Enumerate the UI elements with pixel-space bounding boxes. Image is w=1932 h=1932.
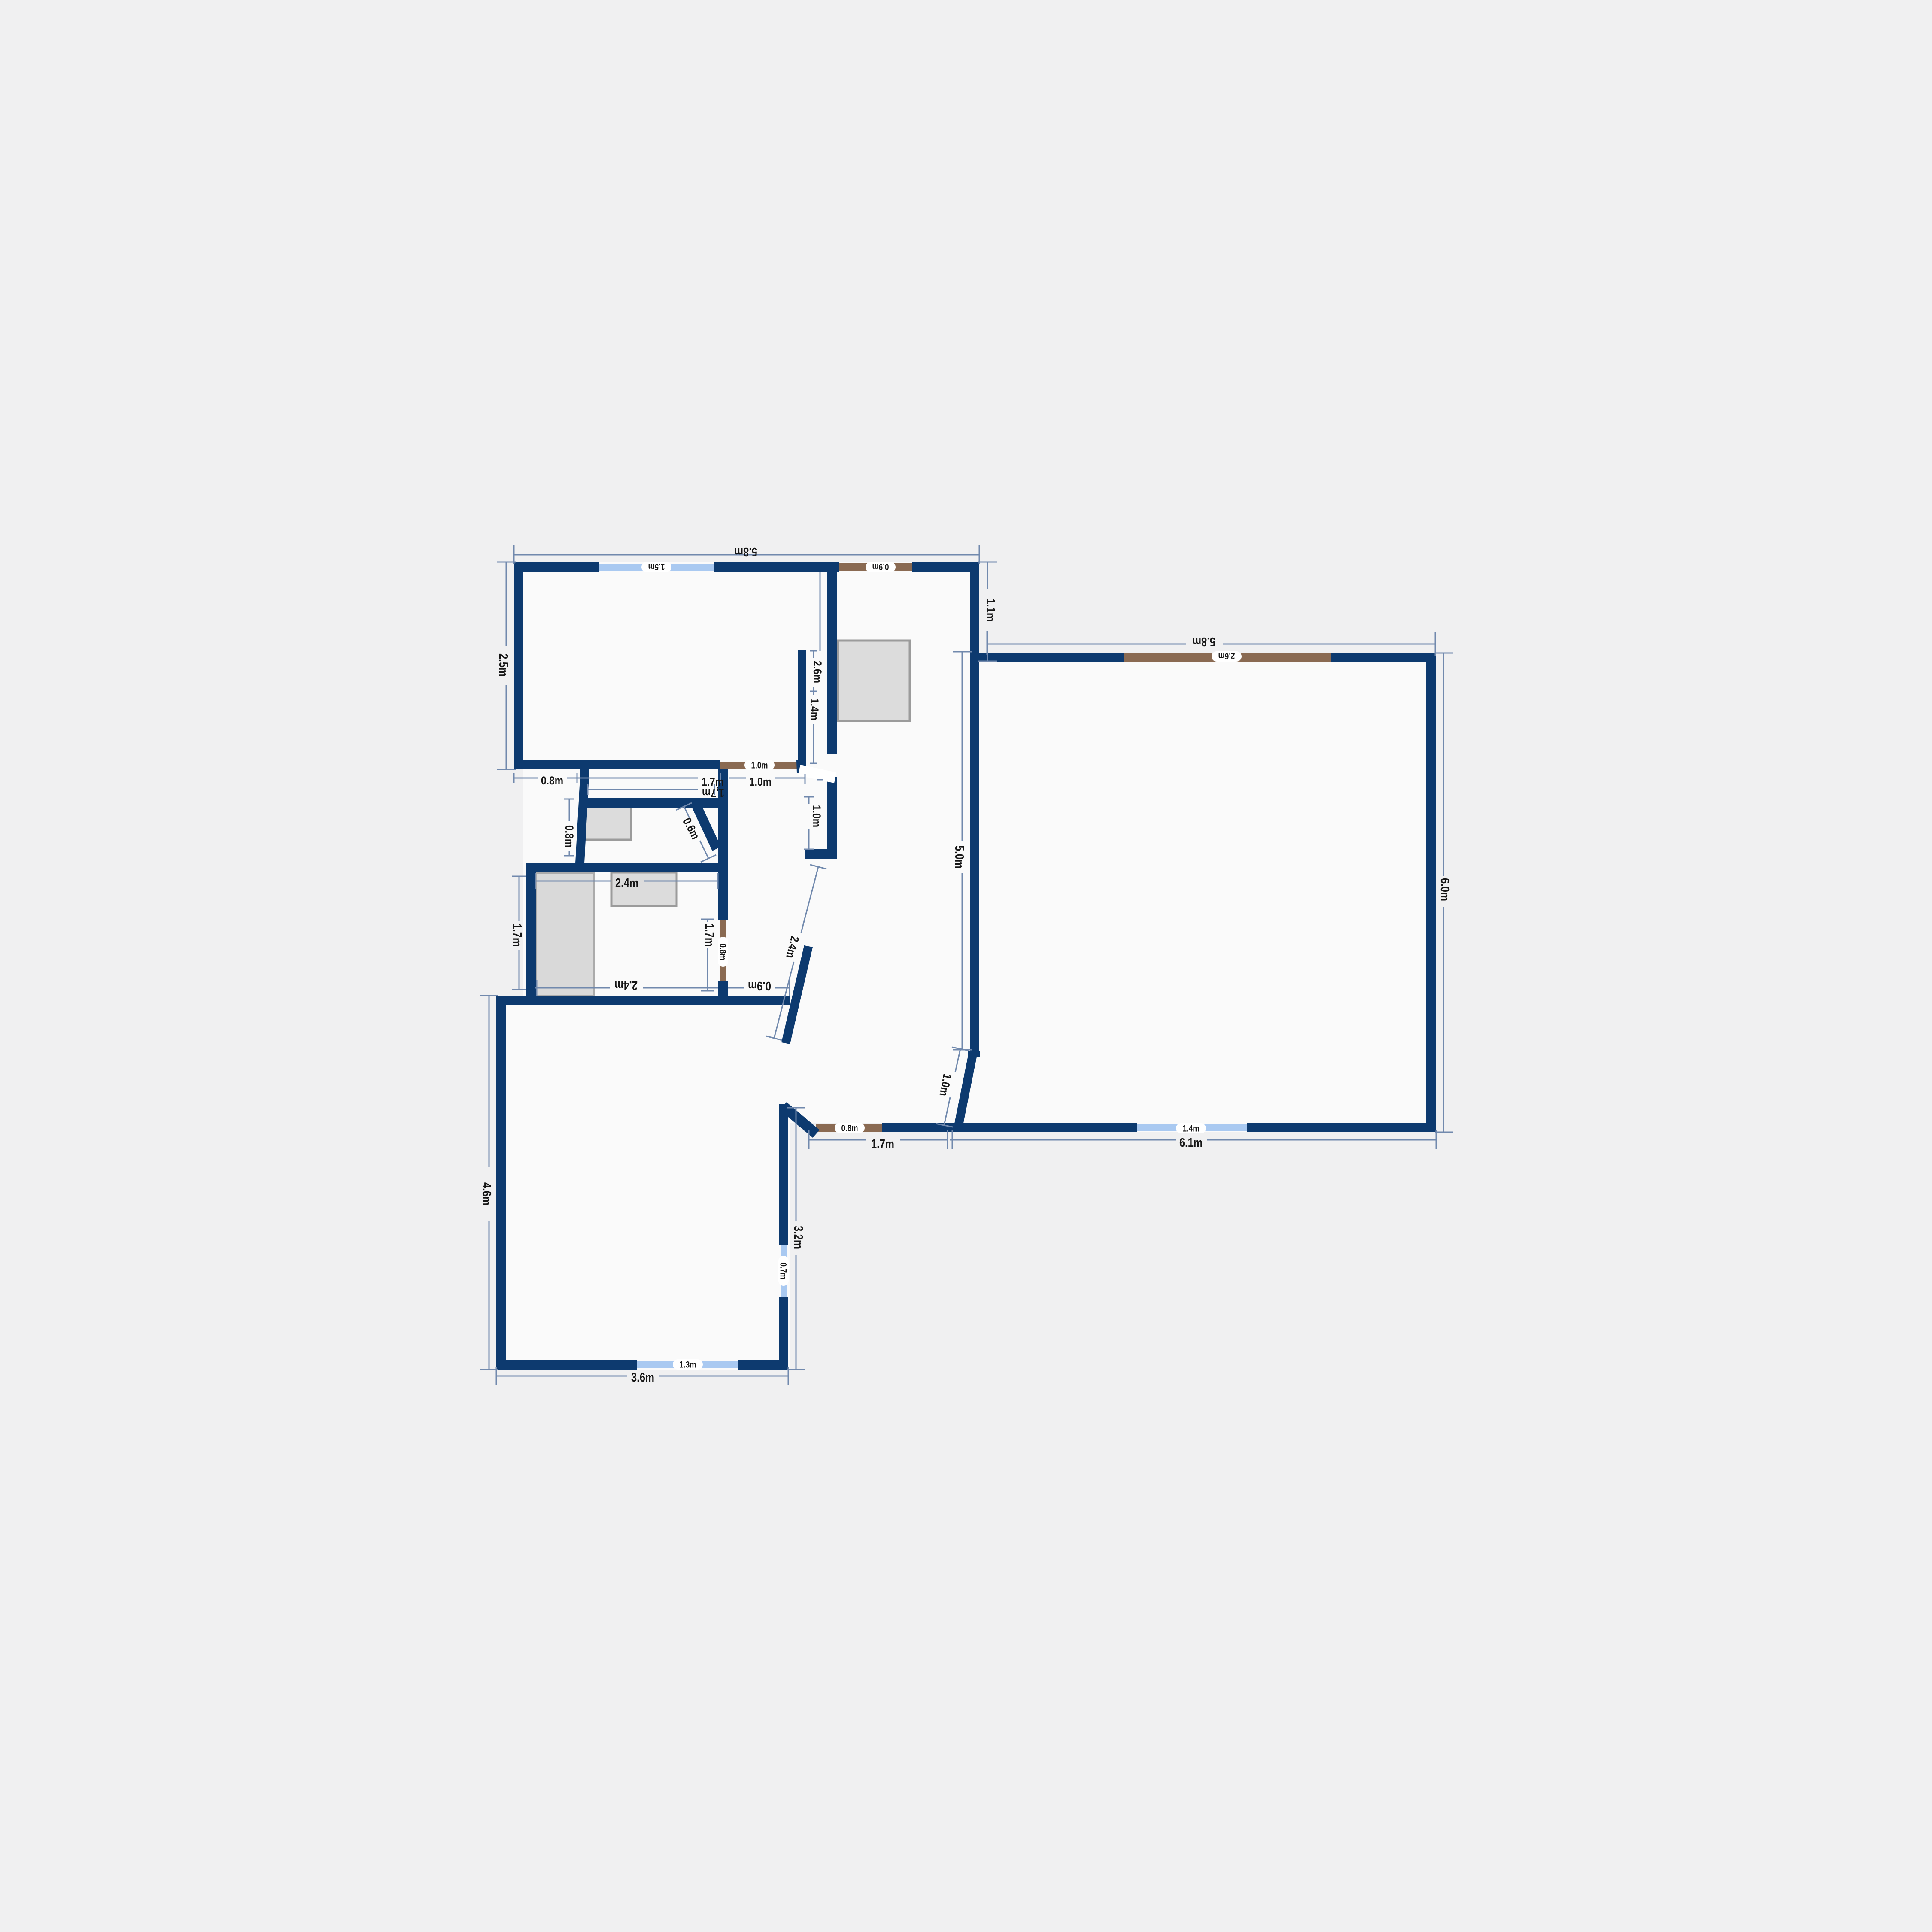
svg-text:0.9m: 0.9m: [748, 979, 771, 993]
svg-text:4.6m: 4.6m: [480, 1182, 493, 1206]
svg-text:1.5m: 1.5m: [648, 562, 665, 572]
svg-text:6.1m: 6.1m: [1179, 1136, 1203, 1150]
svg-text:1.0m: 1.0m: [751, 761, 768, 771]
svg-text:2.4m: 2.4m: [614, 978, 638, 992]
svg-text:0.8m: 0.8m: [841, 1124, 858, 1133]
svg-text:1.4m: 1.4m: [808, 698, 821, 720]
svg-text:1.7m: 1.7m: [702, 923, 716, 947]
svg-text:1.3m: 1.3m: [680, 1360, 696, 1370]
svg-text:5.0m: 5.0m: [952, 845, 966, 869]
svg-text:5.8m: 5.8m: [1192, 635, 1215, 648]
svg-text:1.1m: 1.1m: [984, 598, 997, 622]
svg-text:3.2m: 3.2m: [791, 1226, 805, 1249]
svg-text:2.6m: 2.6m: [811, 661, 824, 683]
svg-text:6.0m: 6.0m: [1438, 878, 1452, 901]
svg-text:3.6m: 3.6m: [631, 1371, 654, 1385]
svg-text:1.7m: 1.7m: [702, 775, 724, 788]
svg-text:2.6m: 2.6m: [1218, 651, 1235, 661]
svg-text:1.0m: 1.0m: [810, 805, 823, 827]
svg-text:0.9m: 0.9m: [872, 562, 889, 572]
svg-text:0.8m: 0.8m: [563, 825, 576, 848]
svg-text:1.7m: 1.7m: [871, 1137, 894, 1151]
svg-text:2.4m: 2.4m: [615, 876, 638, 890]
svg-text:1,7m: 1,7m: [702, 787, 724, 799]
svg-text:1.4m: 1.4m: [1183, 1124, 1200, 1134]
svg-text:2.5m: 2.5m: [496, 653, 510, 677]
svg-text:5.8m: 5.8m: [734, 545, 757, 559]
svg-text:0.8m: 0.8m: [541, 774, 563, 787]
svg-text:0.8m: 0.8m: [718, 944, 728, 960]
svg-text:0.7m: 0.7m: [778, 1263, 788, 1279]
svg-text:1.7m: 1.7m: [510, 923, 524, 947]
svg-text:1.0m: 1.0m: [749, 775, 772, 788]
